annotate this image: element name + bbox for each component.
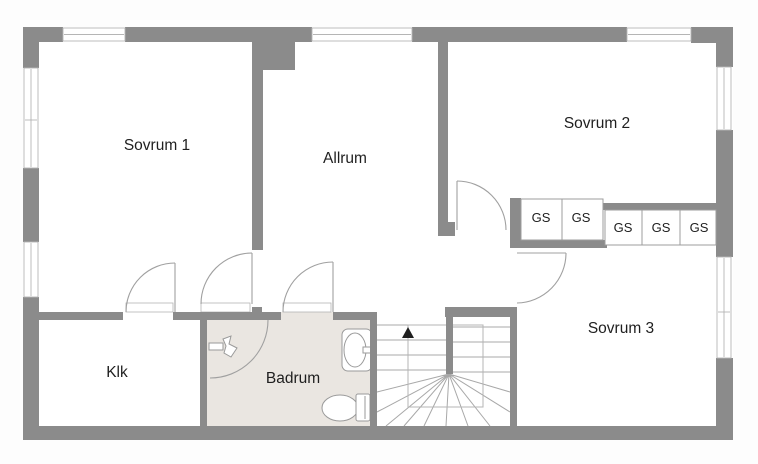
closet-label-gs-2: GS [572,210,591,225]
closet-label-gs-4: GS [652,220,671,235]
wall-allrum-sovrum2-foot [438,222,455,236]
wall-pier-top [252,42,295,70]
floor-plan-page: Sovrum 1 Allrum Sovrum 2 Sovrum 3 Klk Ba… [0,0,758,464]
wall-sovrum1-allrum [252,70,263,250]
toilet-tank [356,394,370,421]
wall-left [23,168,39,242]
wall-top [412,27,627,42]
bathroom-door-gap-floor [281,312,333,321]
wall-right [716,130,733,257]
closet-label-gs-1: GS [532,210,551,225]
wall-closet-group2-top [600,203,718,210]
wall-right [716,27,733,67]
room-label-allrum: Allrum [323,150,367,167]
wall-hall-pier [252,307,262,320]
toilet-bowl [322,395,358,421]
window [717,257,731,358]
wall-stairs-divider [446,317,453,374]
wall-bottom [23,426,733,440]
floor-plan: Sovrum 1 Allrum Sovrum 2 Sovrum 3 Klk Ba… [0,0,758,464]
wall-closet-group1-bottom [510,240,607,248]
sill-hall-door [201,303,250,312]
door-sills [126,303,331,312]
wall-badrum-stairs [370,312,377,427]
window [24,68,38,168]
window [63,28,125,41]
sill-badrum-door [283,303,331,312]
wall-stairs-sovrum3 [510,307,517,427]
wall-left [23,27,39,68]
wall-valve-stem [209,343,223,350]
room-label-klk: Klk [106,364,128,381]
window [312,28,412,41]
room-label-sovrum3: Sovrum 3 [588,320,654,337]
room-label-sovrum1: Sovrum 1 [124,137,190,154]
window [627,28,691,41]
wall-allrum-sovrum2 [438,42,448,222]
window [24,242,38,297]
closet-label-gs-5: GS [690,220,709,235]
room-label-sovrum2: Sovrum 2 [564,115,630,132]
wall-stairs-top [445,307,513,317]
wall-hall-south [23,312,123,320]
wall-top [125,27,312,42]
sill-klk-door [126,303,173,312]
window [717,67,731,130]
wall-hall-south [173,312,281,320]
wall-klk-badrum [200,312,207,427]
closet-label-gs-3: GS [614,220,633,235]
room-label-badrum: Badrum [266,370,320,387]
